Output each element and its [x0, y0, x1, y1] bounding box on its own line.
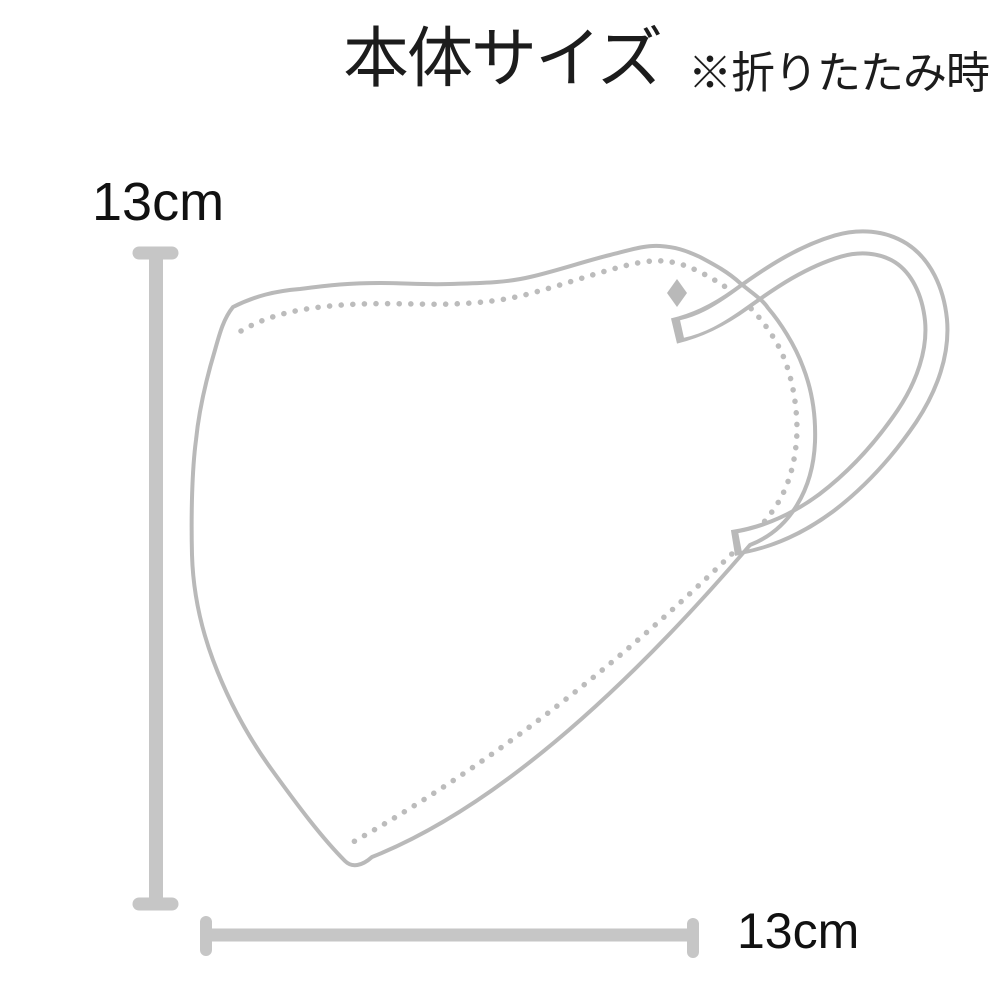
mask-outline	[192, 246, 816, 865]
width-dimension-bar	[206, 922, 693, 952]
mask-illustration	[0, 0, 1000, 1000]
diamond-mark	[667, 279, 687, 307]
ear-loop-band-border	[674, 242, 936, 543]
mask-size-diagram: 本体サイズ ※折りたたみ時 13cm 13cm	[0, 0, 1000, 1000]
height-dimension-bar	[139, 253, 172, 904]
ear-loop-band	[674, 242, 936, 543]
stitch-dotted-line	[241, 261, 797, 846]
